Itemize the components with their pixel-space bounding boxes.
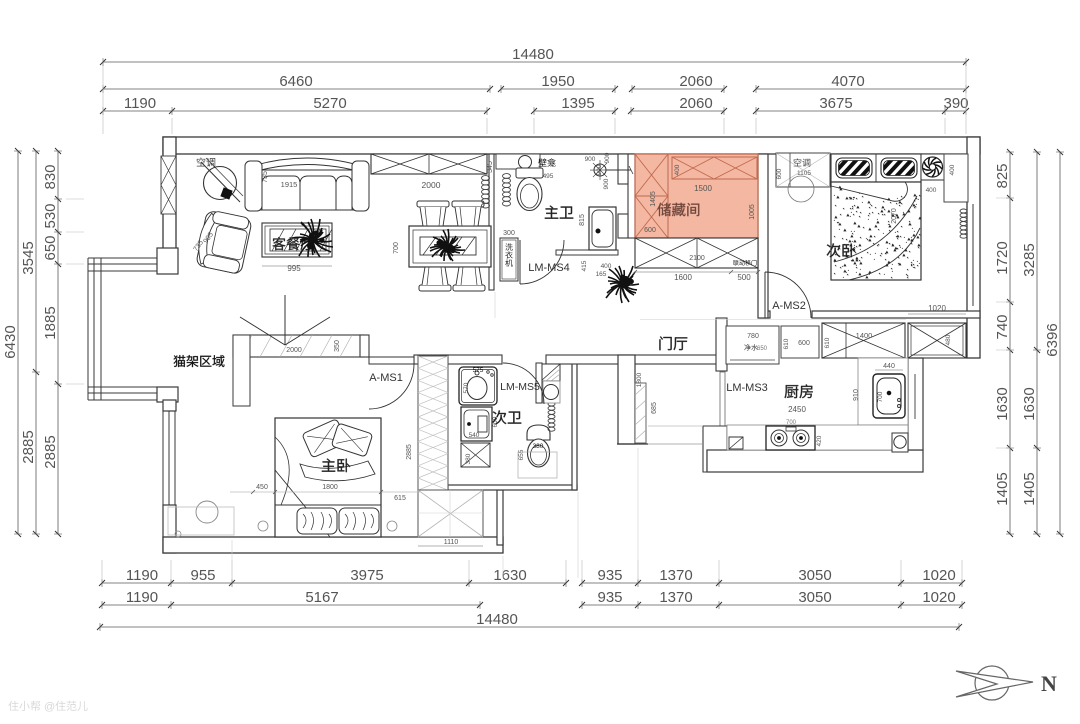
svg-text:1110: 1110 <box>444 539 459 546</box>
svg-text:1630: 1630 <box>994 387 1011 420</box>
svg-text:5270: 5270 <box>313 95 346 112</box>
svg-text:995: 995 <box>287 264 301 273</box>
svg-text:530: 530 <box>42 203 59 228</box>
svg-text:2885: 2885 <box>406 444 413 460</box>
svg-text:910: 910 <box>853 389 860 401</box>
svg-text:575: 575 <box>473 367 484 374</box>
svg-text:955: 955 <box>190 567 215 584</box>
svg-text:740: 740 <box>994 314 1011 339</box>
svg-text:650: 650 <box>42 235 59 260</box>
svg-text:2060: 2060 <box>679 95 712 112</box>
svg-text:655: 655 <box>518 449 525 460</box>
svg-text:650: 650 <box>757 346 768 352</box>
svg-text:LM-MS5: LM-MS5 <box>500 381 540 393</box>
svg-text:615: 615 <box>394 495 406 502</box>
svg-text:3675: 3675 <box>819 95 852 112</box>
svg-text:2450: 2450 <box>788 405 806 414</box>
svg-text:450: 450 <box>256 484 268 491</box>
svg-text:390: 390 <box>943 95 968 112</box>
svg-text:600: 600 <box>798 340 810 347</box>
svg-text:2885: 2885 <box>20 430 37 463</box>
svg-text:570: 570 <box>463 382 470 393</box>
svg-text:1405: 1405 <box>994 472 1011 505</box>
svg-text:1400: 1400 <box>856 331 873 340</box>
svg-text:400: 400 <box>674 164 681 175</box>
svg-text:A-MS1: A-MS1 <box>369 372 403 384</box>
svg-text:3975: 3975 <box>350 567 383 584</box>
svg-text:6396: 6396 <box>1044 323 1061 356</box>
svg-text:1005: 1005 <box>749 204 756 220</box>
svg-text:3050: 3050 <box>798 589 831 606</box>
svg-text:1190: 1190 <box>124 95 156 112</box>
svg-text:1395: 1395 <box>561 95 594 112</box>
svg-text:1020: 1020 <box>928 304 946 313</box>
svg-text:3285: 3285 <box>1021 243 1038 276</box>
svg-text:1885: 1885 <box>42 306 59 339</box>
svg-text:2060: 2060 <box>679 73 712 90</box>
svg-text:400: 400 <box>949 164 956 175</box>
svg-text:1630: 1630 <box>1021 387 1038 420</box>
svg-text:A-MS2: A-MS2 <box>772 300 806 312</box>
svg-text:380: 380 <box>533 443 544 450</box>
svg-text:1190: 1190 <box>126 567 158 584</box>
svg-text:3545: 3545 <box>20 241 37 274</box>
svg-text:935: 935 <box>597 589 622 606</box>
svg-text:935: 935 <box>597 567 622 584</box>
svg-text:6460: 6460 <box>279 73 312 90</box>
svg-text:610: 610 <box>783 338 790 349</box>
svg-text:400: 400 <box>926 187 937 194</box>
svg-text:1405: 1405 <box>1021 472 1038 505</box>
svg-text:1800: 1800 <box>322 484 338 491</box>
svg-text:3050: 3050 <box>798 567 831 584</box>
svg-text:600: 600 <box>644 227 656 234</box>
svg-text:4070: 4070 <box>831 73 864 90</box>
svg-text:700: 700 <box>786 420 797 426</box>
svg-text:@: @ <box>44 701 55 713</box>
svg-text:14480: 14480 <box>512 46 554 63</box>
svg-text:1020: 1020 <box>922 589 955 606</box>
svg-text:900: 900 <box>603 178 610 189</box>
svg-text:1190: 1190 <box>126 589 158 606</box>
svg-text:N: N <box>1041 671 1057 696</box>
svg-text:420: 420 <box>816 435 823 446</box>
svg-text:1500: 1500 <box>694 184 712 193</box>
svg-text:495: 495 <box>543 173 554 180</box>
svg-text:700: 700 <box>877 391 884 402</box>
svg-text:2000: 2000 <box>286 347 302 354</box>
svg-text:825: 825 <box>994 163 1011 188</box>
svg-text:6430: 6430 <box>2 325 19 358</box>
svg-text:5167: 5167 <box>305 589 338 606</box>
svg-text:1800: 1800 <box>636 372 643 387</box>
svg-text:685: 685 <box>651 402 658 414</box>
svg-text:900: 900 <box>585 156 596 163</box>
svg-text:780: 780 <box>747 333 759 340</box>
svg-text:LM-MS3: LM-MS3 <box>726 382 768 394</box>
svg-text:1370: 1370 <box>659 567 692 584</box>
svg-text:14480: 14480 <box>476 611 518 628</box>
svg-text:2100: 2100 <box>689 255 705 262</box>
svg-text:500: 500 <box>737 273 751 282</box>
svg-text:380: 380 <box>465 453 472 464</box>
svg-text:1630: 1630 <box>493 567 526 584</box>
svg-text:1915: 1915 <box>281 180 298 189</box>
svg-text:165: 165 <box>596 271 607 278</box>
svg-text:815: 815 <box>579 214 586 226</box>
svg-text:735: 735 <box>262 171 269 183</box>
svg-text:1370: 1370 <box>659 589 692 606</box>
svg-text:1405: 1405 <box>650 191 657 207</box>
svg-text:2885: 2885 <box>42 435 59 468</box>
svg-text:345: 345 <box>487 161 494 173</box>
svg-text:2000: 2000 <box>422 180 441 190</box>
svg-text:900: 900 <box>604 152 611 163</box>
svg-text:480: 480 <box>945 334 952 345</box>
svg-text:830: 830 <box>42 164 59 189</box>
svg-text:610: 610 <box>824 337 831 348</box>
svg-text:415: 415 <box>581 260 588 271</box>
svg-text:700: 700 <box>393 242 400 254</box>
svg-text:540: 540 <box>469 432 480 439</box>
svg-text:300: 300 <box>503 230 515 237</box>
svg-text:900: 900 <box>596 164 603 175</box>
svg-text:600: 600 <box>776 168 783 179</box>
svg-text:1950: 1950 <box>541 73 574 90</box>
svg-text:1600: 1600 <box>674 273 692 282</box>
svg-text:1020: 1020 <box>922 567 955 584</box>
svg-text:2070: 2070 <box>891 208 898 224</box>
svg-text:1720: 1720 <box>994 241 1011 274</box>
svg-text:350: 350 <box>334 340 341 352</box>
svg-text:LM-MS4: LM-MS4 <box>528 262 570 274</box>
svg-text:440: 440 <box>883 363 895 370</box>
